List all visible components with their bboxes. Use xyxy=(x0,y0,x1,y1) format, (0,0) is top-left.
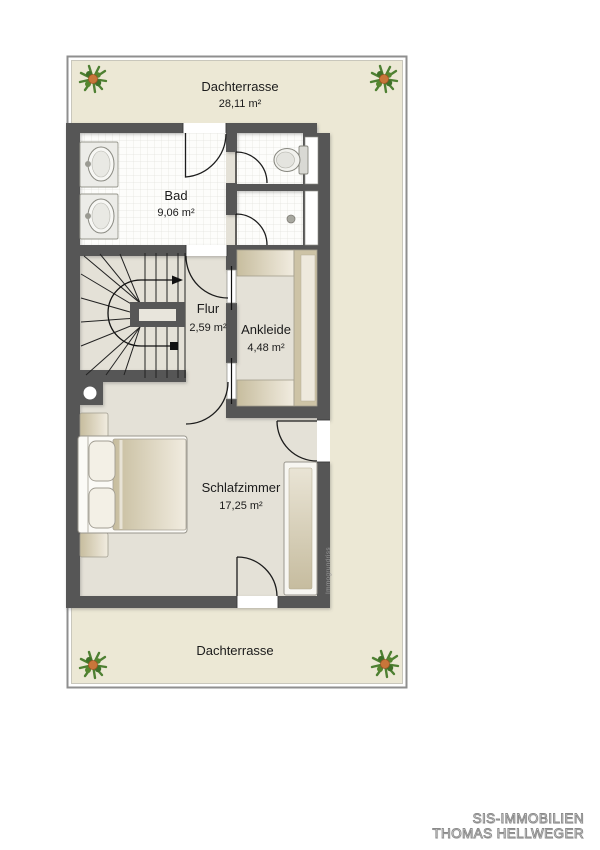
footer-agent: THOMAS HELLWEGER xyxy=(432,826,584,841)
wardrobe xyxy=(284,462,317,595)
footer-branding: SIS-IMMOBILIEN THOMAS HELLWEGER xyxy=(432,811,584,841)
room-schlafzimmer-area: 17,25 m² xyxy=(219,500,263,512)
duvet xyxy=(113,439,186,530)
room-schlafzimmer-label: Schlafzimmer xyxy=(202,480,281,495)
wardrobe xyxy=(237,250,294,276)
sink xyxy=(80,194,118,239)
room-flur-area: 2,59 m² xyxy=(189,322,227,334)
pillow xyxy=(89,488,115,528)
pillow xyxy=(89,441,115,481)
footer-company: SIS-IMMOBILIEN xyxy=(432,811,584,826)
watermark-text: Immogrundriss xyxy=(325,547,332,594)
terrace-top-label: Dachterrasse xyxy=(201,79,278,94)
floor-plan-image: Dachterrasse 28,11 m² Bad 9,06 m² Flur 2… xyxy=(0,0,600,850)
room-bad-label: Bad xyxy=(164,188,187,203)
wardrobe xyxy=(294,250,317,406)
sink xyxy=(80,142,118,187)
shower-drain xyxy=(287,215,295,223)
bed xyxy=(78,436,187,533)
terrace-bottom-label: Dachterrasse xyxy=(196,643,273,658)
room-ankleide-area: 4,48 m² xyxy=(247,342,285,354)
nightstand xyxy=(80,413,108,437)
room-ankleide-label: Ankleide xyxy=(241,322,291,337)
floor-plan-page: Dachterrasse 28,11 m² Bad 9,06 m² Flur 2… xyxy=(0,0,600,850)
nightstand xyxy=(80,533,108,557)
room-bad-area: 9,06 m² xyxy=(157,207,195,219)
window xyxy=(305,191,318,245)
stair-newel-core xyxy=(139,309,176,321)
terrace-top-area: 28,11 m² xyxy=(219,98,262,110)
wardrobe xyxy=(237,380,294,406)
room-flur-label: Flur xyxy=(197,301,220,316)
wall-column xyxy=(84,387,97,400)
